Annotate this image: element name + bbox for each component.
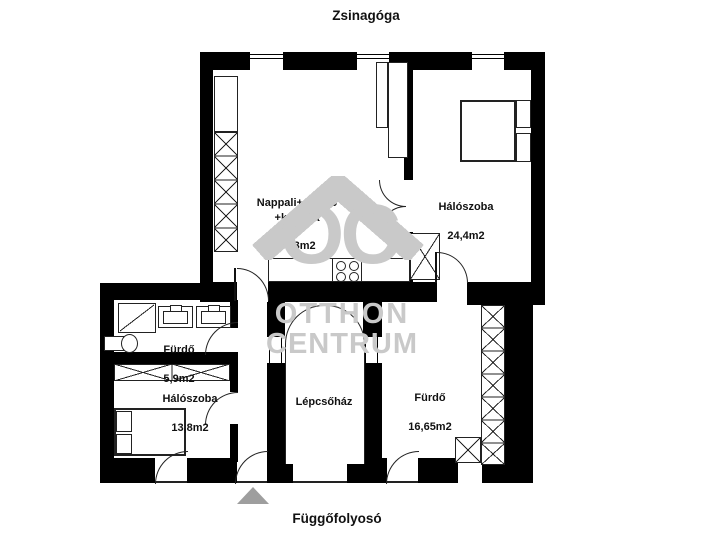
- toilet-bowl: [121, 334, 138, 353]
- door-arc: [379, 180, 406, 207]
- door-arc: [237, 268, 269, 301]
- room-name: Fürdő: [414, 392, 445, 404]
- washbasin-bowl: [201, 311, 226, 324]
- room-area: 13,8m2: [171, 422, 208, 434]
- floorplan-canvas: Zsinagóga Függőfolyosó: [0, 0, 719, 543]
- bed-pillow: [116, 434, 132, 454]
- window-glazing: [250, 54, 283, 55]
- bed-pillow: [516, 133, 531, 162]
- door-leaf: [234, 268, 236, 301]
- room-name: Nappali+étkező +konyha: [257, 197, 337, 223]
- kitchen-counter: [388, 62, 408, 158]
- door-threshold: [293, 481, 347, 483]
- room-label-living: Nappali+étkező +konyha 40,3m2: [257, 182, 337, 253]
- window: [457, 462, 483, 483]
- cabinet: [214, 76, 238, 132]
- wall-segment: [230, 354, 238, 392]
- room-area: 16,65m2: [408, 421, 451, 433]
- room-area: 24,4m2: [447, 230, 484, 242]
- wall-segment: [100, 283, 203, 300]
- washbasin: [158, 306, 193, 328]
- stove-burner-icon: [336, 272, 346, 282]
- room-label-bathroom-large: Fürdő 16,65m2: [408, 377, 451, 434]
- wall-segment: [100, 283, 114, 483]
- wall-segment: [363, 302, 382, 483]
- stove-burner-icon: [349, 272, 359, 282]
- wall-segment: [268, 282, 437, 302]
- kitchen-stove: [332, 258, 362, 282]
- room-name: Hálószoba: [438, 201, 493, 213]
- wall-segment: [200, 282, 237, 302]
- window-glazing: [482, 462, 483, 483]
- wall-segment: [467, 282, 545, 305]
- washbasin-tap: [208, 305, 220, 312]
- room-name: Hálószoba: [162, 393, 217, 405]
- door-arc: [379, 206, 406, 233]
- room-area: 40,3m2: [278, 240, 315, 252]
- wall-segment: [267, 302, 285, 483]
- wall-segment: [100, 458, 155, 483]
- window-glazing: [269, 337, 270, 363]
- wall-segment: [200, 52, 213, 302]
- room-name: Lépcsőház: [296, 396, 353, 408]
- door-leaf: [435, 252, 437, 283]
- door-arc: [437, 252, 468, 283]
- window-glazing: [377, 337, 378, 363]
- door-arc: [235, 451, 268, 484]
- wall-segment: [187, 458, 237, 483]
- stove-burner-icon: [336, 261, 346, 271]
- window-glazing: [281, 337, 282, 363]
- washbasin-bowl: [163, 311, 188, 324]
- window-glazing: [357, 54, 389, 55]
- washbasin-tap: [170, 305, 182, 312]
- window-glazing: [357, 58, 389, 59]
- wall-segment: [230, 424, 238, 462]
- stove-burner-icon: [349, 261, 359, 271]
- wall-segment: [531, 52, 545, 305]
- kitchen-counter: [376, 62, 388, 128]
- bed-pillow: [116, 411, 132, 432]
- window-glazing: [472, 54, 504, 55]
- room-label-bedroom-small: Hálószoba 13,8m2: [162, 378, 217, 435]
- wall-segment: [418, 458, 457, 483]
- north-arrow-icon: [237, 487, 269, 504]
- bed-pillow: [516, 100, 531, 128]
- door-arc: [386, 451, 419, 484]
- shaft-hatch: [455, 437, 481, 463]
- window-glazing: [472, 58, 504, 59]
- corridor-label: Függőfolyosó: [292, 511, 381, 526]
- room-name: Fürdő: [163, 344, 194, 356]
- room-label-bedroom-large: Hálószoba 24,4m2: [438, 186, 493, 243]
- window-glazing: [457, 462, 458, 483]
- page-title: Zsinagóga: [332, 8, 400, 23]
- bed: [460, 100, 516, 162]
- wall-segment: [505, 305, 533, 483]
- window-glazing: [365, 337, 366, 363]
- shower: [118, 303, 156, 333]
- shaft-hatch: [481, 305, 505, 465]
- cabinet-hatch: [214, 132, 238, 252]
- window-glazing: [250, 58, 283, 59]
- room-label-staircase: Lépcsőház: [296, 381, 353, 410]
